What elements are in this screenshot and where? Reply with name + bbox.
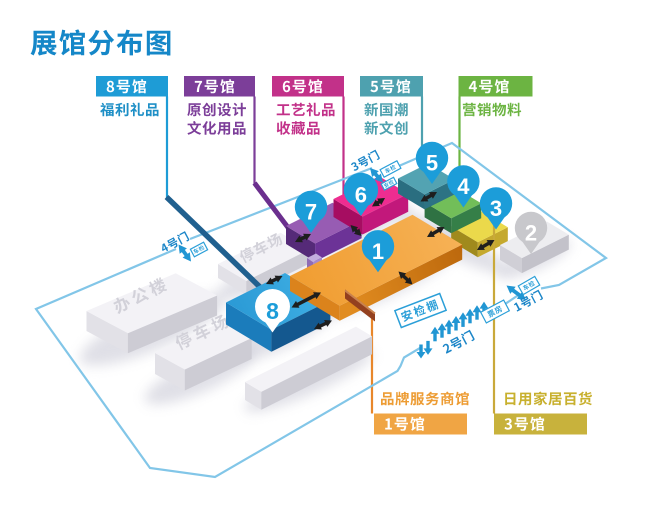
- svg-text:1: 1: [372, 239, 384, 264]
- svg-text:6: 6: [355, 183, 367, 208]
- svg-text:2: 2: [525, 221, 537, 246]
- svg-text:5: 5: [426, 151, 438, 176]
- svg-text:4: 4: [457, 174, 470, 199]
- svg-text:7: 7: [305, 200, 317, 225]
- svg-text:8: 8: [266, 298, 279, 324]
- svg-text:3: 3: [490, 196, 502, 221]
